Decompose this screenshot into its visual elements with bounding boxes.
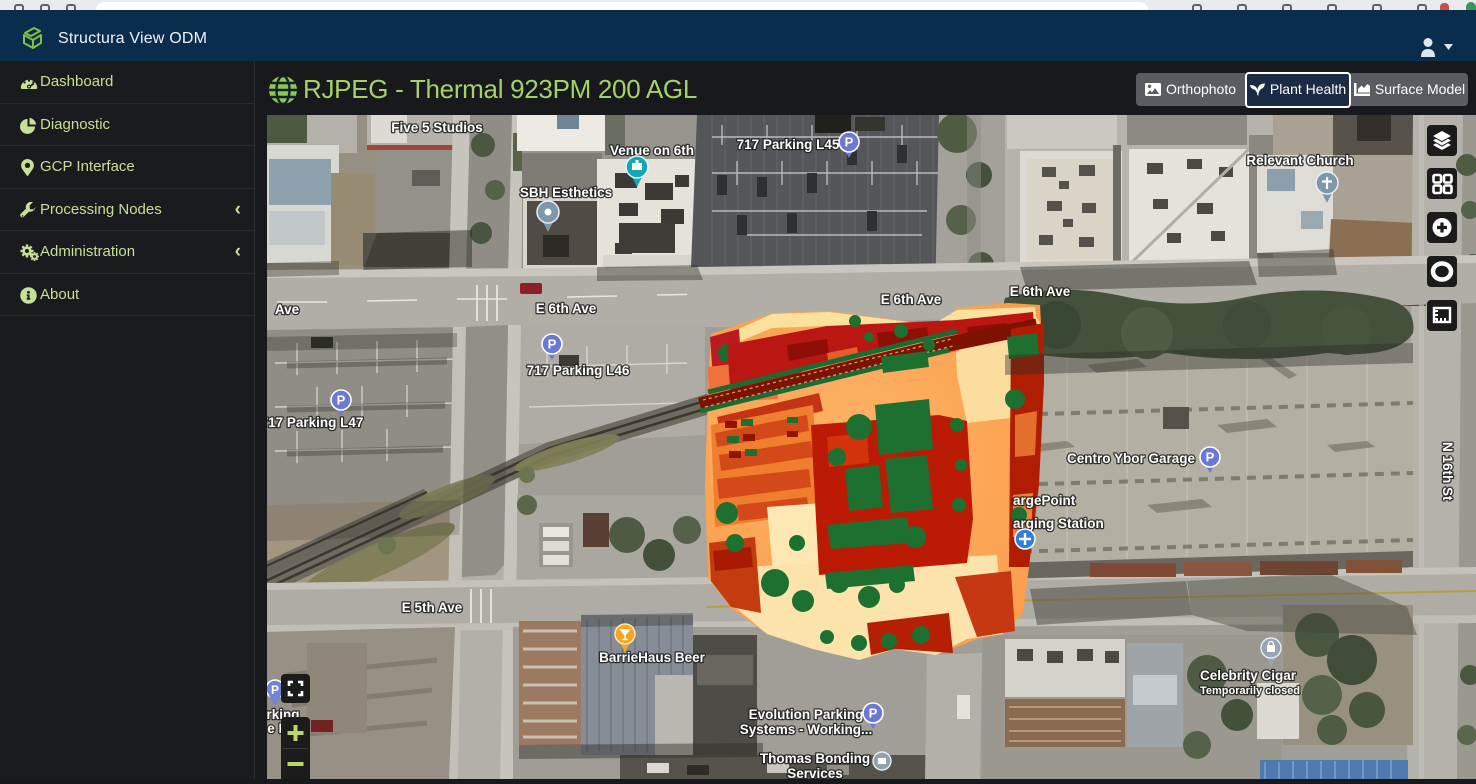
svg-text:Relevant Church: Relevant Church <box>1246 153 1353 168</box>
svg-text:E 6th Ave: E 6th Ave <box>1010 284 1071 299</box>
svg-text:Venue on 6th: Venue on 6th <box>610 143 694 158</box>
svg-text:Five 5 Studios: Five 5 Studios <box>391 120 483 135</box>
svg-text:P: P <box>337 393 346 408</box>
svg-text:SBH Esthetics: SBH Esthetics <box>520 185 612 200</box>
svg-text:Evolution Parking: Evolution Parking <box>749 707 864 722</box>
svg-text:Thomas Bonding: Thomas Bonding <box>760 751 870 766</box>
svg-text:BarrieHaus Beer: BarrieHaus Beer <box>599 650 706 665</box>
svg-text:Centro Ybor Garage: Centro Ybor Garage <box>1067 451 1196 466</box>
svg-text:Systems - Working...: Systems - Working... <box>740 722 873 737</box>
svg-text:E 6th Ave: E 6th Ave <box>881 292 942 307</box>
svg-text:Services: Services <box>787 766 843 779</box>
svg-text:N 16th St: N 16th St <box>1440 442 1455 501</box>
svg-text:717 Parking L47: 717 Parking L47 <box>267 415 363 430</box>
svg-text:Ave: Ave <box>275 302 300 317</box>
svg-text:P: P <box>548 337 557 352</box>
svg-text:P: P <box>845 135 854 150</box>
svg-text:Celebrity Cigar: Celebrity Cigar <box>1200 668 1297 683</box>
svg-text:P: P <box>1206 450 1215 465</box>
svg-text:E 5th Ave: E 5th Ave <box>402 600 463 615</box>
svg-text:P: P <box>271 683 279 697</box>
svg-text:717 Parking L45: 717 Parking L45 <box>737 137 840 152</box>
svg-text:E 6th Ave: E 6th Ave <box>536 301 597 316</box>
svg-text:P: P <box>869 706 878 721</box>
svg-text:argePoint: argePoint <box>1013 493 1076 508</box>
svg-text:Temporarily closed: Temporarily closed <box>1200 685 1300 697</box>
svg-text:717 Parking L46: 717 Parking L46 <box>527 363 630 378</box>
